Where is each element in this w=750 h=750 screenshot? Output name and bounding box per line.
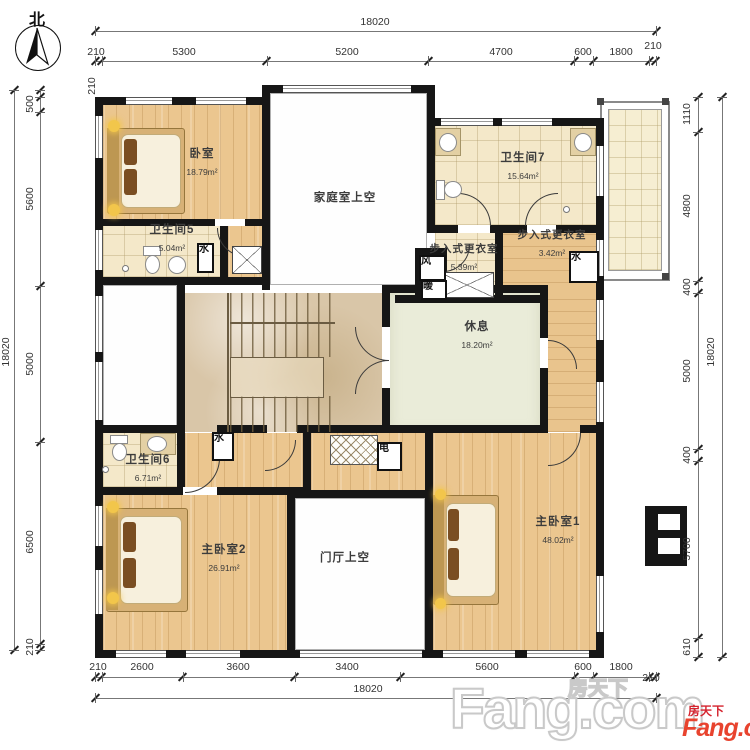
dim-tick-line [693, 293, 703, 294]
window [283, 85, 411, 93]
dim-label: 5300 [172, 46, 195, 58]
dim-tick [35, 639, 44, 648]
wall [428, 425, 548, 433]
stair-rail [227, 293, 229, 432]
room-label-master2: 主卧室2 26.91m² [202, 540, 247, 576]
dim-tick [35, 281, 44, 290]
window [527, 650, 589, 658]
dim-label: 3600 [226, 661, 249, 673]
dim-tick [651, 26, 660, 35]
dim-tick-line [95, 693, 96, 703]
dim-tick-line [9, 90, 19, 91]
room-label-closet-a: 步入式更衣室 5.39m² [430, 239, 499, 275]
floor-plan-canvas: 水 风 暖 水 水 电 卧室 18.79m² 卫生间5 5.04m² 家庭室上空… [0, 0, 750, 750]
wall [95, 425, 185, 433]
room-area: 3.42m² [539, 248, 565, 258]
toilet-bowl [444, 181, 462, 198]
dim-tick-line [102, 672, 103, 682]
wall [540, 285, 548, 338]
dim-label: 400 [681, 278, 693, 296]
room-label-bath6: 卫生间6 6.71m² [126, 450, 171, 486]
dim-tick-line [295, 672, 296, 682]
pillow [448, 548, 459, 580]
dim-tick-line [267, 56, 268, 66]
dim-tick-line [717, 97, 727, 98]
dim-label: 610 [681, 638, 693, 656]
shaft-water: 水 [212, 432, 234, 461]
door-arc [185, 458, 220, 493]
window [95, 230, 103, 270]
wall [295, 490, 433, 498]
dim-tick [35, 92, 44, 101]
wall [177, 433, 185, 487]
room-label-closet-b: 步入式更衣室 3.42m² [518, 225, 587, 261]
wall [382, 285, 390, 327]
dim-tick-line [693, 132, 703, 133]
pillow [124, 169, 137, 195]
dim-tick [693, 276, 702, 285]
dim-tick [262, 56, 271, 65]
dim-label: 210 [86, 77, 98, 95]
room-name: 卫生间6 [126, 454, 171, 466]
dim-tick [90, 26, 99, 35]
room-label-bath5: 卫生间5 5.04m² [150, 220, 195, 256]
window [441, 118, 493, 126]
dim-tick-line [35, 442, 45, 443]
dim-tick [90, 672, 99, 681]
room-name: 主卧室1 [536, 516, 581, 528]
fang-logo-en: Fang.com [682, 714, 750, 743]
dim-tick [693, 652, 702, 661]
shaft-electric: 电 [377, 442, 402, 471]
dim-tick [35, 645, 44, 654]
window [596, 300, 604, 340]
window [443, 650, 515, 658]
dim-label: 4700 [489, 46, 512, 58]
dim-tick [423, 56, 432, 65]
dim-label: 210 [24, 638, 36, 656]
dim-tick-line [183, 672, 184, 682]
room-label-bedroom: 卧室 18.79m² [186, 144, 217, 180]
window [300, 650, 422, 658]
wall [427, 126, 435, 233]
dim-tick [717, 92, 726, 101]
dim-label: 4800 [681, 194, 693, 217]
floor-drain [102, 466, 109, 473]
wall [95, 487, 183, 495]
dim-tick [178, 672, 187, 681]
dim-tick-line [95, 672, 96, 682]
dim-tick-line [35, 650, 45, 651]
dim-tick [395, 672, 404, 681]
window [95, 116, 103, 158]
window [116, 650, 166, 658]
dim-tick-line [717, 657, 727, 658]
dim-tick-line [9, 650, 19, 651]
lamp [435, 598, 446, 609]
dim-tick-line [693, 638, 703, 639]
dim-tick-line [35, 112, 45, 113]
dim-tick-line [693, 281, 703, 282]
room-area: 18.20m² [461, 340, 492, 350]
dim-tick-line [656, 56, 657, 66]
laundry-box [232, 246, 262, 274]
bed-headboard [433, 495, 444, 603]
dim-label: 5000 [24, 352, 36, 375]
dim-tick-line [35, 97, 45, 98]
dim-tick [290, 672, 299, 681]
dim-tick [693, 633, 702, 642]
dim-tick [644, 56, 653, 65]
dim-tick [90, 693, 99, 702]
wall [177, 285, 185, 433]
wall [427, 225, 458, 233]
room-name: 步入式更衣室 [430, 243, 499, 255]
dim-label-overall: 18020 [705, 337, 717, 366]
dim-tick [693, 92, 702, 101]
wall [262, 93, 270, 290]
window [596, 146, 604, 196]
room-label-foyer-void: 门厅上空 [320, 548, 370, 566]
dim-tick [693, 127, 702, 136]
dim-tick-line [656, 26, 657, 36]
window [126, 97, 172, 105]
window [186, 650, 240, 658]
wall [425, 433, 433, 650]
dim-tick [717, 652, 726, 661]
window [596, 382, 604, 422]
dim-line [722, 97, 723, 657]
dim-label: 210 [89, 661, 107, 673]
dim-label: 2600 [130, 661, 153, 673]
dim-label: 210 [644, 40, 662, 52]
dim-tick [693, 456, 702, 465]
room-area: 5.04m² [159, 243, 185, 253]
north-arrow-icon [15, 25, 59, 69]
room-area: 15.64m² [507, 171, 538, 181]
dim-tick [97, 672, 106, 681]
window [596, 576, 604, 632]
room-name: 卫生间7 [501, 152, 546, 164]
room-name: 门厅上空 [320, 552, 370, 564]
pillow [448, 509, 459, 541]
room-name: 卧室 [190, 148, 215, 160]
dim-label: 5000 [681, 359, 693, 382]
dim-tick [9, 85, 18, 94]
window [95, 362, 103, 420]
dim-tick-line [593, 56, 594, 66]
toilet-bowl [145, 255, 160, 274]
closet-unit [440, 272, 494, 298]
sink [439, 133, 457, 152]
dim-tick [693, 288, 702, 297]
lamp [435, 489, 446, 500]
dim-tick [651, 56, 660, 65]
room-label-bath7: 卫生间7 15.64m² [501, 148, 546, 184]
wall [287, 495, 295, 658]
dim-label: 5600 [24, 187, 36, 210]
room-area: 6.71m² [135, 473, 161, 483]
sink [574, 133, 592, 152]
dim-tick-line [649, 56, 650, 66]
lamp [108, 120, 120, 132]
pillow [123, 522, 136, 552]
dim-label: 500 [24, 95, 36, 113]
lamp [108, 204, 120, 216]
dim-tick [693, 444, 702, 453]
room-area: 48.02m² [542, 535, 573, 545]
stair-treads-upper [230, 293, 335, 357]
sink [168, 256, 186, 274]
bed-headboard [107, 128, 119, 212]
dim-tick-line [693, 449, 703, 450]
closet-unit [330, 435, 378, 465]
dim-tick [35, 85, 44, 94]
dim-tick-line [35, 286, 45, 287]
shaft-heat: 暖 [421, 280, 447, 300]
floor-drain [122, 265, 129, 272]
terrace-post [662, 98, 669, 105]
window [196, 97, 246, 105]
watermark-brand-en: Fang.com [450, 676, 703, 742]
room-area: 5.39m² [451, 262, 477, 272]
floor-rest [390, 293, 540, 432]
room-area: 18.79m² [186, 167, 217, 177]
floor-left-void [103, 285, 177, 433]
dim-tick-line [428, 56, 429, 66]
dim-tick-line [35, 90, 45, 91]
dim-tick-line [693, 97, 703, 98]
dim-tick-line [35, 644, 45, 645]
lamp [107, 501, 119, 513]
room-name: 步入式更衣室 [518, 229, 587, 241]
dim-label: 1800 [609, 46, 632, 58]
dim-label: 6500 [24, 530, 36, 553]
dim-line [95, 31, 656, 32]
stair-treads-lower [230, 396, 335, 432]
dim-label: 3400 [335, 661, 358, 673]
wall [580, 425, 596, 433]
dim-tick [35, 107, 44, 116]
wall [540, 368, 548, 433]
dim-line [40, 90, 41, 650]
dim-tick-line [693, 461, 703, 462]
wall [303, 433, 311, 495]
room-label-master1: 主卧室1 48.02m² [536, 512, 581, 548]
shaft-water: 水 [197, 243, 214, 273]
window [95, 570, 103, 614]
terrace-floor [608, 109, 662, 271]
wall [95, 277, 265, 285]
window [95, 296, 103, 352]
dim-label-overall: 18020 [353, 683, 382, 695]
dim-label-overall: 18020 [360, 16, 389, 28]
dim-label: 5200 [335, 46, 358, 58]
terrace-post [662, 273, 669, 280]
dim-line [698, 97, 699, 657]
room-name: 主卧室2 [202, 544, 247, 556]
pillow [123, 558, 136, 588]
room-name: 家庭室上空 [314, 192, 377, 204]
dim-label: 210 [87, 46, 105, 58]
room-name: 休息 [465, 321, 490, 333]
bumpout-notch [658, 538, 680, 554]
floor-foyer-void [295, 498, 425, 650]
dim-label-overall: 18020 [0, 337, 12, 366]
dim-tick-line [95, 26, 96, 36]
dim-label: 400 [681, 446, 693, 464]
dim-tick [9, 645, 18, 654]
dim-line [95, 61, 656, 62]
floor-drain [563, 206, 570, 213]
terrace-post [597, 98, 604, 105]
lamp [107, 592, 119, 604]
room-label-family-void: 家庭室上空 [314, 188, 377, 206]
stair-landing [230, 357, 324, 398]
dim-line [14, 90, 15, 650]
pillow [124, 139, 137, 165]
dim-label: 5700 [681, 537, 693, 560]
dim-label: 600 [574, 46, 592, 58]
dim-label: 5600 [475, 661, 498, 673]
window [502, 118, 552, 126]
dim-tick [35, 437, 44, 446]
room-area: 26.91m² [208, 563, 239, 573]
room-name: 卫生间5 [150, 224, 195, 236]
dim-label: 1110 [681, 103, 693, 125]
dim-tick-line [400, 672, 401, 682]
bumpout-notch [658, 514, 680, 530]
room-label-rest: 休息 18.20m² [461, 317, 492, 353]
stair-rail [230, 322, 335, 324]
window [95, 506, 103, 546]
dim-tick-line [693, 657, 703, 658]
